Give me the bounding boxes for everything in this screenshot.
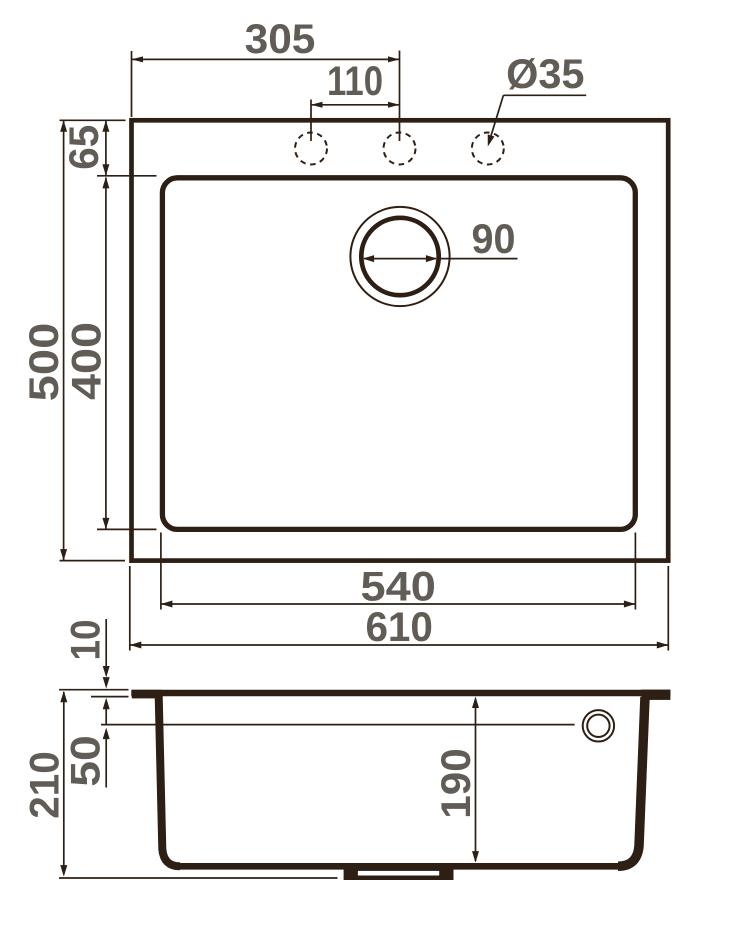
svg-text:90: 90 (472, 215, 516, 262)
svg-text:190: 190 (432, 748, 479, 819)
svg-text:Ø35: Ø35 (506, 50, 584, 97)
svg-text:610: 610 (365, 603, 433, 650)
svg-text:400: 400 (63, 322, 110, 400)
svg-text:500: 500 (20, 323, 67, 402)
svg-text:65: 65 (60, 125, 107, 170)
svg-text:210: 210 (21, 751, 68, 819)
svg-text:10: 10 (62, 620, 109, 661)
svg-text:110: 110 (327, 57, 383, 104)
svg-text:305: 305 (245, 15, 316, 62)
svg-text:50: 50 (62, 735, 109, 787)
